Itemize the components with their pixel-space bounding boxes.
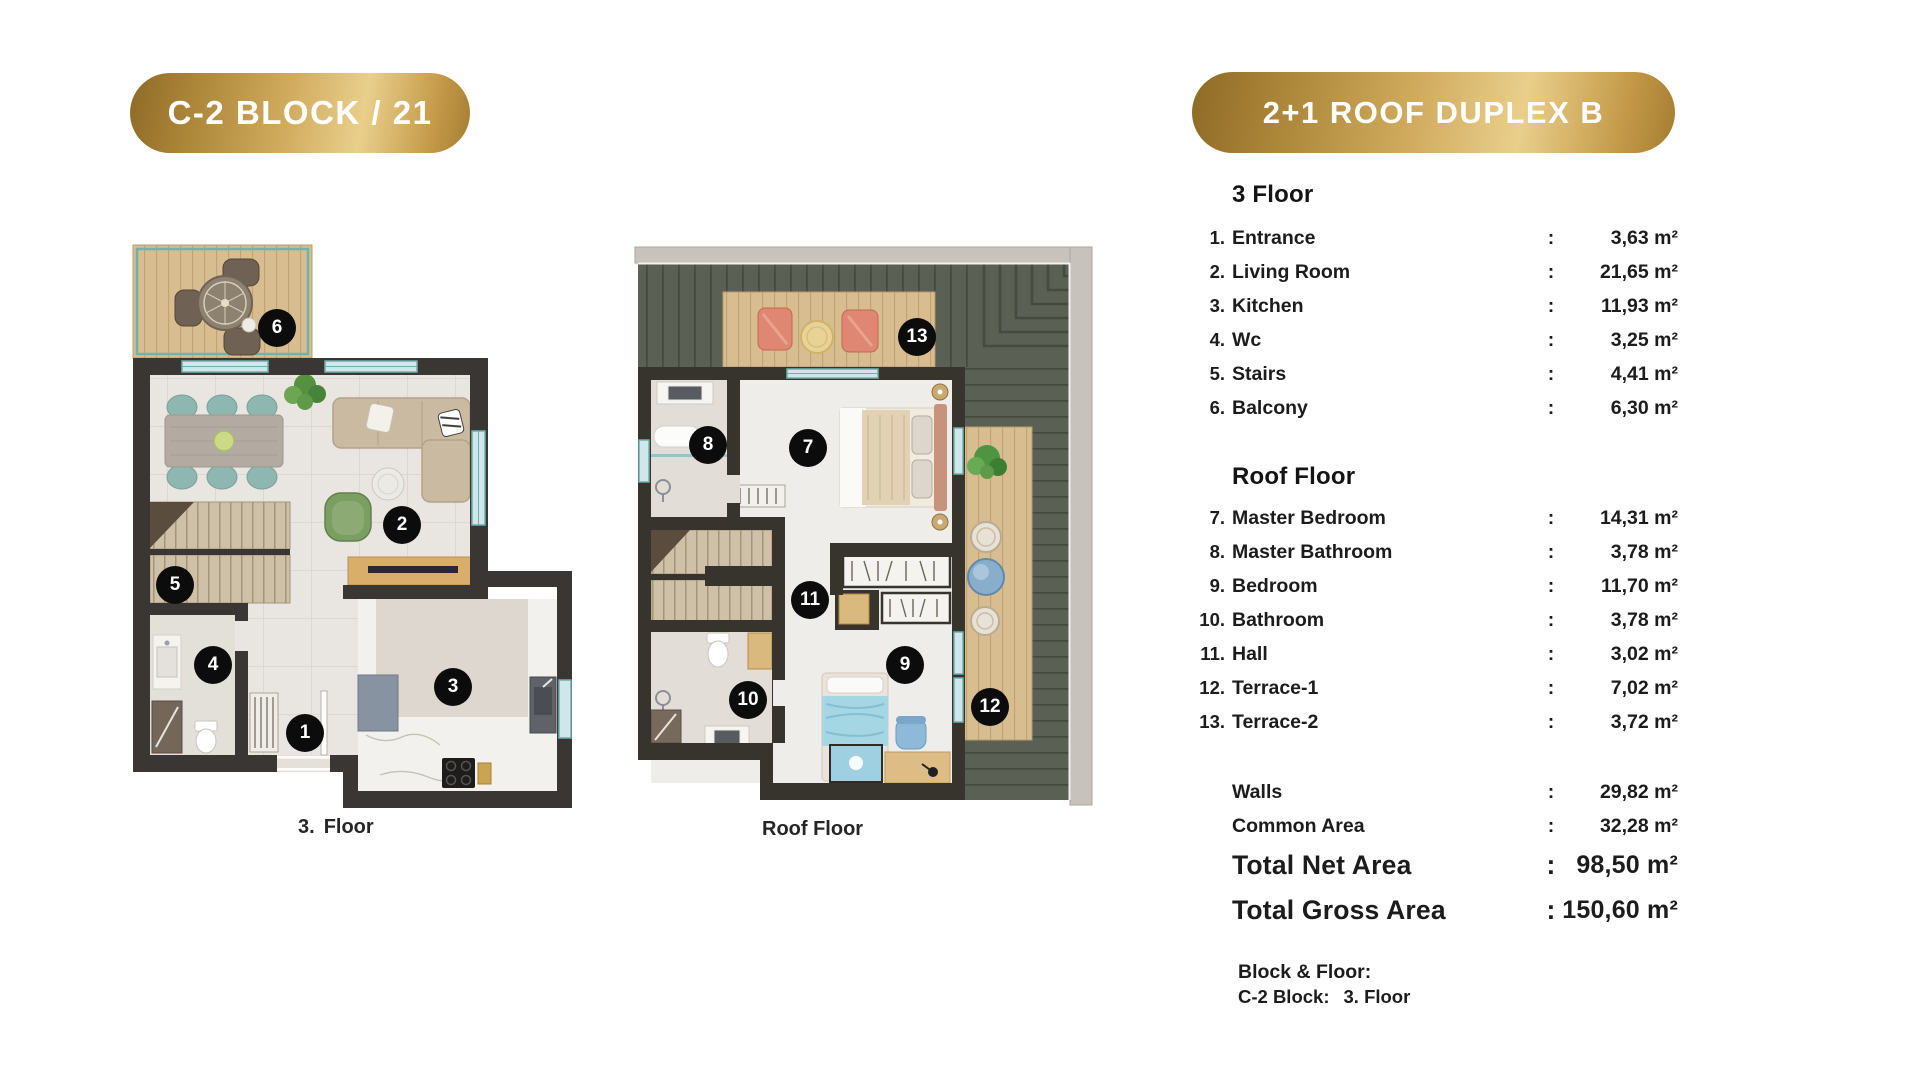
- row-number: 8.: [1196, 541, 1232, 563]
- row-value: 3,25 m²: [1562, 329, 1678, 352]
- row-label: Hall: [1232, 643, 1540, 666]
- row-label: Balcony: [1232, 397, 1540, 420]
- row-value: 32,28 m²: [1562, 815, 1678, 838]
- row-colon: :: [1540, 261, 1562, 284]
- wc-vanity-icon: [153, 635, 181, 689]
- row-colon: :: [1540, 815, 1562, 838]
- row-colon: :: [1540, 677, 1562, 700]
- room-marker-3: 3: [434, 668, 472, 706]
- row-colon: :: [1540, 295, 1562, 318]
- room-marker-13: 13: [898, 318, 936, 356]
- room-marker-4: 4: [194, 646, 232, 684]
- unit-type-badge-label: 2+1 ROOF DUPLEX B: [1263, 95, 1605, 131]
- row-number: 4.: [1196, 329, 1232, 351]
- row-value: 11,70 m²: [1562, 575, 1678, 598]
- crib-icon: [830, 745, 882, 782]
- row-value: 4,41 m²: [1562, 363, 1678, 386]
- block-badge-label: C-2 BLOCK / 21: [168, 94, 433, 132]
- summary-row-walls: Walls : 29,82 m²: [1196, 775, 1678, 809]
- area-summary: Walls : 29,82 m² Common Area : 32,28 m² …: [1196, 775, 1678, 933]
- row-value: 29,82 m²: [1562, 781, 1678, 804]
- summary-row-common-area: Common Area : 32,28 m²: [1196, 809, 1678, 843]
- floor3-caption-text: Floor: [324, 816, 374, 839]
- floor3-plan-drawing: [120, 235, 585, 810]
- unit-type-badge: 2+1 ROOF DUPLEX B: [1192, 72, 1675, 153]
- room-marker-7: 7: [789, 429, 827, 467]
- row-label: Total Gross Area: [1232, 895, 1540, 926]
- row-label: Living Room: [1232, 261, 1540, 284]
- terrace-chair-icon: [971, 607, 999, 635]
- row-number: 9.: [1196, 575, 1232, 597]
- tv-console-icon: [348, 557, 478, 585]
- row-value: 3,72 m²: [1562, 711, 1678, 734]
- row-colon: :: [1540, 227, 1562, 250]
- row-number: 10.: [1196, 609, 1232, 631]
- floor3-caption-number: 3.: [298, 816, 315, 839]
- block-floor-block: C-2 Block:: [1238, 985, 1330, 1009]
- row-colon: :: [1540, 329, 1562, 352]
- row-number: 12.: [1196, 677, 1232, 699]
- room-marker-12: 12: [971, 688, 1009, 726]
- row-colon: :: [1540, 850, 1562, 881]
- stove-icon: [442, 758, 475, 788]
- wc-toilet-icon: [195, 721, 217, 753]
- section-heading-floor3: 3 Floor: [1232, 180, 1678, 210]
- block-floor-floor: 3. Floor: [1344, 985, 1411, 1009]
- row-label: Total Net Area: [1232, 850, 1540, 881]
- row-label: Kitchen: [1232, 295, 1540, 318]
- row-number: 11.: [1196, 643, 1232, 665]
- room-marker-6: 6: [258, 309, 296, 347]
- row-colon: :: [1540, 397, 1562, 420]
- row-colon: :: [1540, 609, 1562, 632]
- summary-row-total-net: Total Net Area : 98,50 m²: [1196, 843, 1678, 888]
- area-row: 1. Entrance : 3,63 m²: [1196, 221, 1678, 255]
- area-row: 3. Kitchen : 11,93 m²: [1196, 289, 1678, 323]
- row-label: Master Bedroom: [1232, 507, 1540, 530]
- row-number: 3.: [1196, 295, 1232, 317]
- area-row: 9. Bedroom : 11,70 m²: [1196, 569, 1678, 603]
- row-colon: :: [1540, 575, 1562, 598]
- row-number: 13.: [1196, 711, 1232, 733]
- row-colon: :: [1540, 711, 1562, 734]
- row-label: Master Bathroom: [1232, 541, 1540, 564]
- row-colon: :: [1540, 507, 1562, 530]
- room-marker-11: 11: [791, 581, 829, 619]
- terrace-table-icon: [801, 321, 833, 353]
- row-colon: :: [1540, 781, 1562, 804]
- roof-stairs: [651, 530, 772, 622]
- row-colon: :: [1540, 541, 1562, 564]
- kitchen-cabinet-icon: [358, 675, 398, 731]
- floor3-room-list: 1. Entrance : 3,63 m² 2. Living Room : 2…: [1196, 221, 1678, 425]
- row-colon: :: [1540, 643, 1562, 666]
- area-row: 7. Master Bedroom : 14,31 m²: [1196, 501, 1678, 535]
- row-label: Bathroom: [1232, 609, 1540, 632]
- wc-shower-icon: [152, 701, 182, 753]
- roof-plan-drawing: [630, 240, 1095, 815]
- area-row: 8. Master Bathroom : 3,78 m²: [1196, 535, 1678, 569]
- summary-row-total-gross: Total Gross Area : 150,60 m²: [1196, 888, 1678, 933]
- area-row: 10. Bathroom : 3,78 m²: [1196, 603, 1678, 637]
- row-label: Stairs: [1232, 363, 1540, 386]
- room-marker-1: 1: [286, 714, 324, 752]
- entrance-door-leaf: [321, 691, 327, 755]
- row-value: 3,78 m²: [1562, 541, 1678, 564]
- area-row: 5. Stairs : 4,41 m²: [1196, 357, 1678, 391]
- row-number: 1.: [1196, 227, 1232, 249]
- area-row: 6. Balcony : 6,30 m²: [1196, 391, 1678, 425]
- row-value: 98,50 m²: [1562, 851, 1678, 880]
- dresser-icon: [835, 590, 879, 630]
- section-heading-roof: Roof Floor: [1232, 462, 1678, 492]
- row-label: Walls: [1232, 781, 1540, 804]
- area-row: 13. Terrace-2 : 3,72 m²: [1196, 705, 1678, 739]
- row-value: 3,63 m²: [1562, 227, 1678, 250]
- floor3-caption: 3. Floor: [298, 816, 374, 839]
- row-label: Terrace-1: [1232, 677, 1540, 700]
- area-row: 2. Living Room : 21,65 m²: [1196, 255, 1678, 289]
- row-colon: :: [1540, 363, 1562, 386]
- kitchen-crate-icon: [478, 763, 491, 784]
- row-value: 3,02 m²: [1562, 643, 1678, 666]
- roof-plan: 7 8 9 10 11 12 13 Roof Floor: [630, 240, 1095, 870]
- kitchen-sink-icon: [530, 677, 556, 733]
- row-number: 5.: [1196, 363, 1232, 385]
- floor3-plan: 1 2 3 4 5 6 3. Floor: [120, 235, 585, 865]
- room-marker-5: 5: [156, 566, 194, 604]
- entrance-closet-icon: [250, 693, 278, 752]
- armchair-icon: [325, 493, 371, 541]
- row-value: 11,93 m²: [1562, 295, 1678, 318]
- row-value: 7,02 m²: [1562, 677, 1678, 700]
- row-value: 6,30 m²: [1562, 397, 1678, 420]
- row-label: Bedroom: [1232, 575, 1540, 598]
- area-row: 4. Wc : 3,25 m²: [1196, 323, 1678, 357]
- row-value: 21,65 m²: [1562, 261, 1678, 284]
- row-value: 3,78 m²: [1562, 609, 1678, 632]
- roof-caption: Roof Floor: [762, 818, 863, 841]
- coffee-table-icon: [372, 468, 404, 500]
- block-floor-note: Block & Floor: C-2 Block: 3. Floor: [1238, 959, 1678, 1009]
- row-value: 14,31 m²: [1562, 507, 1678, 530]
- brochure-page: C-2 BLOCK / 21 2+1 ROOF DUPLEX B: [0, 0, 1920, 1080]
- desk-chair-icon: [896, 716, 926, 749]
- room-marker-8: 8: [689, 426, 727, 464]
- row-label: Wc: [1232, 329, 1540, 352]
- dining-set: [165, 395, 283, 489]
- block-floor-title: Block & Floor:: [1238, 959, 1678, 985]
- row-value: 150,60 m²: [1562, 896, 1678, 925]
- row-colon: :: [1540, 895, 1562, 926]
- room-marker-10: 10: [729, 681, 767, 719]
- master-closet-icon: [733, 485, 785, 507]
- terrace-chair-icon: [971, 522, 1001, 552]
- block-badge: C-2 BLOCK / 21: [130, 73, 470, 153]
- room-marker-9: 9: [886, 646, 924, 684]
- row-number: 2.: [1196, 261, 1232, 283]
- desk-icon: [885, 752, 950, 783]
- row-label: Entrance: [1232, 227, 1540, 250]
- roof-room-list: 7. Master Bedroom : 14,31 m² 8. Master B…: [1196, 501, 1678, 739]
- row-label: Terrace-2: [1232, 711, 1540, 734]
- row-number: 7.: [1196, 507, 1232, 529]
- row-label: Common Area: [1232, 815, 1540, 838]
- area-row: 11. Hall : 3,02 m²: [1196, 637, 1678, 671]
- stool-icon: [748, 633, 772, 669]
- area-row: 12. Terrace-1 : 7,02 m²: [1196, 671, 1678, 705]
- roof-caption-text: Roof Floor: [762, 818, 863, 841]
- room-marker-2: 2: [383, 506, 421, 544]
- row-number: 6.: [1196, 397, 1232, 419]
- area-table: 3 Floor 1. Entrance : 3,63 m² 2. Living …: [1196, 178, 1678, 1009]
